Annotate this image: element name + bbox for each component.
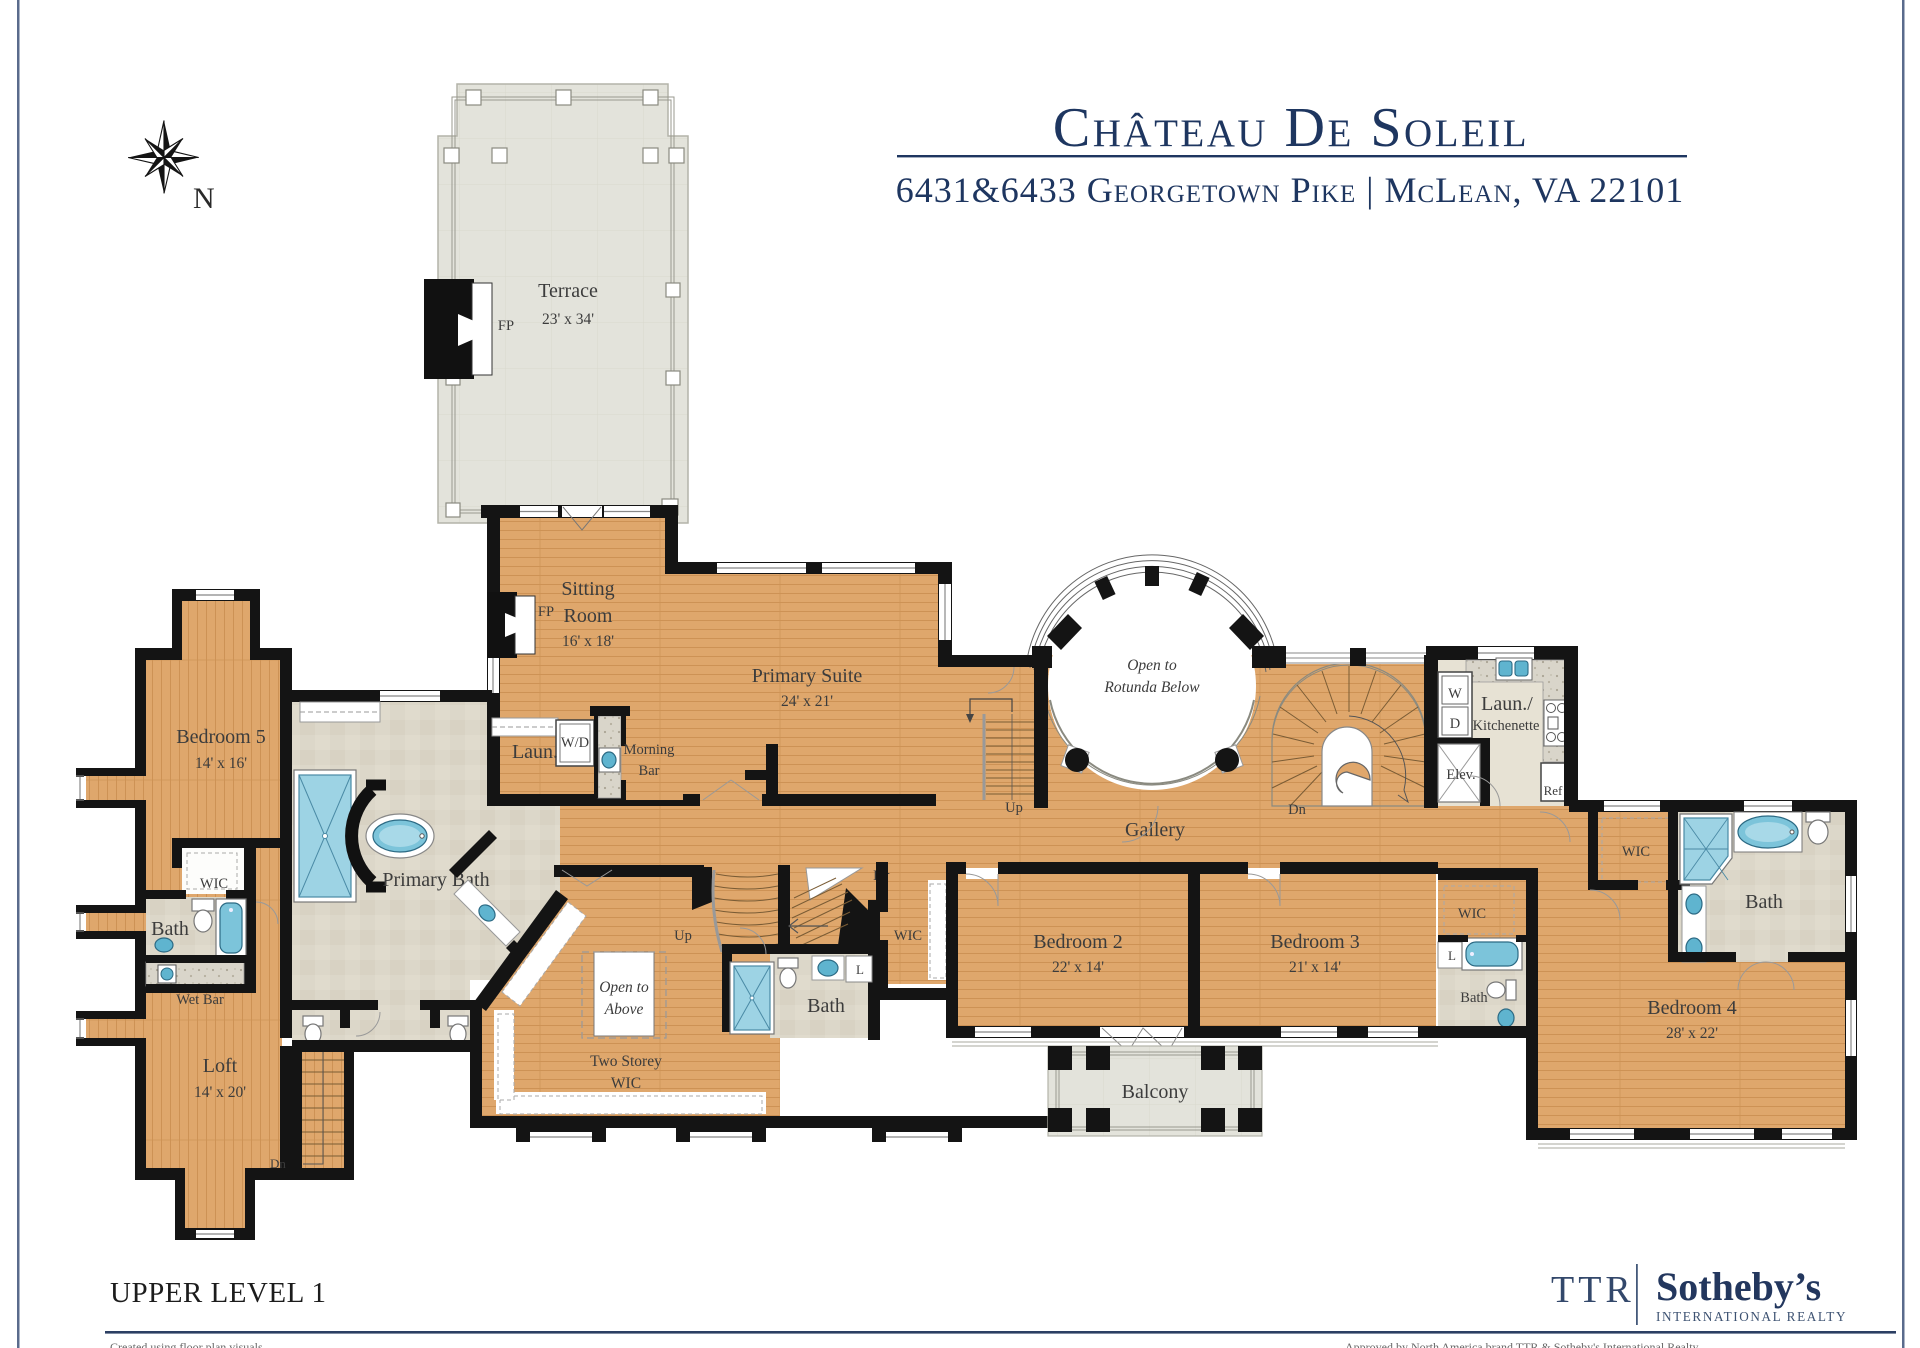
svg-text:Bath: Bath	[1745, 891, 1783, 913]
svg-text:Open to: Open to	[599, 979, 649, 996]
svg-text:23' x 34': 23' x 34'	[542, 311, 594, 328]
svg-text:Up: Up	[674, 928, 692, 944]
svg-text:21' x 14': 21' x 14'	[1289, 959, 1341, 976]
svg-text:Gallery: Gallery	[1125, 819, 1185, 841]
svg-text:Balcony: Balcony	[1122, 1081, 1189, 1103]
svg-text:Morning: Morning	[624, 742, 675, 758]
svg-text:TTR: TTR	[1551, 1269, 1635, 1311]
svg-text:N: N	[193, 182, 215, 215]
svg-text:WIC: WIC	[611, 1075, 641, 1092]
svg-text:L: L	[856, 962, 864, 977]
svg-text:Approved by North America bran: Approved by North America brand TTR & So…	[1345, 1340, 1699, 1348]
svg-text:Up: Up	[1005, 800, 1023, 816]
svg-text:Château De Soleil: Château De Soleil	[1053, 97, 1529, 159]
svg-text:Sotheby’s: Sotheby’s	[1656, 1264, 1821, 1309]
svg-text:WIC: WIC	[1622, 844, 1650, 860]
svg-text:Above: Above	[604, 1001, 644, 1018]
svg-text:Elev.: Elev.	[1446, 767, 1475, 783]
svg-text:Dn: Dn	[270, 1156, 286, 1171]
svg-text:Laun.: Laun.	[512, 741, 558, 763]
svg-text:WIC: WIC	[200, 876, 228, 892]
svg-text:W/D: W/D	[561, 735, 589, 751]
svg-text:Created using floor plan visua: Created using floor plan visuals	[110, 1340, 263, 1348]
svg-text:Loft: Loft	[203, 1055, 238, 1077]
svg-text:Laun./: Laun./	[1481, 693, 1533, 715]
svg-text:28' x 22': 28' x 22'	[1666, 1025, 1718, 1042]
svg-text:22' x 14': 22' x 14'	[1052, 959, 1104, 976]
svg-text:WIC: WIC	[1458, 906, 1486, 922]
svg-text:Bath: Bath	[807, 995, 845, 1017]
svg-text:Bath: Bath	[1460, 990, 1488, 1006]
svg-text:Kitchenette: Kitchenette	[1473, 718, 1540, 734]
svg-text:INTERNATIONAL REALTY: INTERNATIONAL REALTY	[1656, 1309, 1847, 1324]
svg-text:14' x 20': 14' x 20'	[194, 1084, 246, 1101]
svg-text:Wet Bar: Wet Bar	[176, 992, 224, 1008]
svg-text:FP: FP	[538, 604, 554, 620]
svg-text:D: D	[1450, 716, 1460, 732]
svg-text:Bedroom 4: Bedroom 4	[1647, 997, 1736, 1019]
svg-text:Dn: Dn	[1288, 802, 1306, 818]
svg-text:14' x 16': 14' x 16'	[195, 755, 247, 772]
svg-text:Room: Room	[564, 605, 613, 627]
svg-text:Open to: Open to	[1127, 657, 1177, 674]
svg-text:Sitting: Sitting	[561, 578, 614, 600]
svg-text:Bedroom 2: Bedroom 2	[1033, 931, 1122, 953]
svg-text:Ref: Ref	[1544, 783, 1563, 798]
svg-text:Two Storey: Two Storey	[590, 1053, 662, 1070]
svg-text:UPPER LEVEL 1: UPPER LEVEL 1	[110, 1277, 326, 1309]
svg-text:Bedroom 3: Bedroom 3	[1270, 931, 1359, 953]
svg-text:FP: FP	[498, 318, 514, 334]
svg-text:Rotunda Below: Rotunda Below	[1103, 679, 1200, 696]
svg-text:6431&6433 Georgetown Pike | Mc: 6431&6433 Georgetown Pike | McLean, VA 2…	[896, 170, 1685, 210]
svg-text:L: L	[1448, 948, 1456, 963]
svg-text:Primary Suite: Primary Suite	[752, 665, 863, 687]
svg-text:Bar: Bar	[639, 763, 660, 779]
svg-text:Bath: Bath	[151, 918, 189, 940]
svg-text:W: W	[1448, 686, 1462, 702]
svg-text:Bedroom 5: Bedroom 5	[176, 726, 265, 748]
svg-text:WIC: WIC	[894, 928, 922, 944]
svg-text:16' x 18': 16' x 18'	[562, 633, 614, 650]
svg-text:Terrace: Terrace	[538, 280, 598, 302]
svg-text:24' x 21': 24' x 21'	[781, 693, 833, 710]
